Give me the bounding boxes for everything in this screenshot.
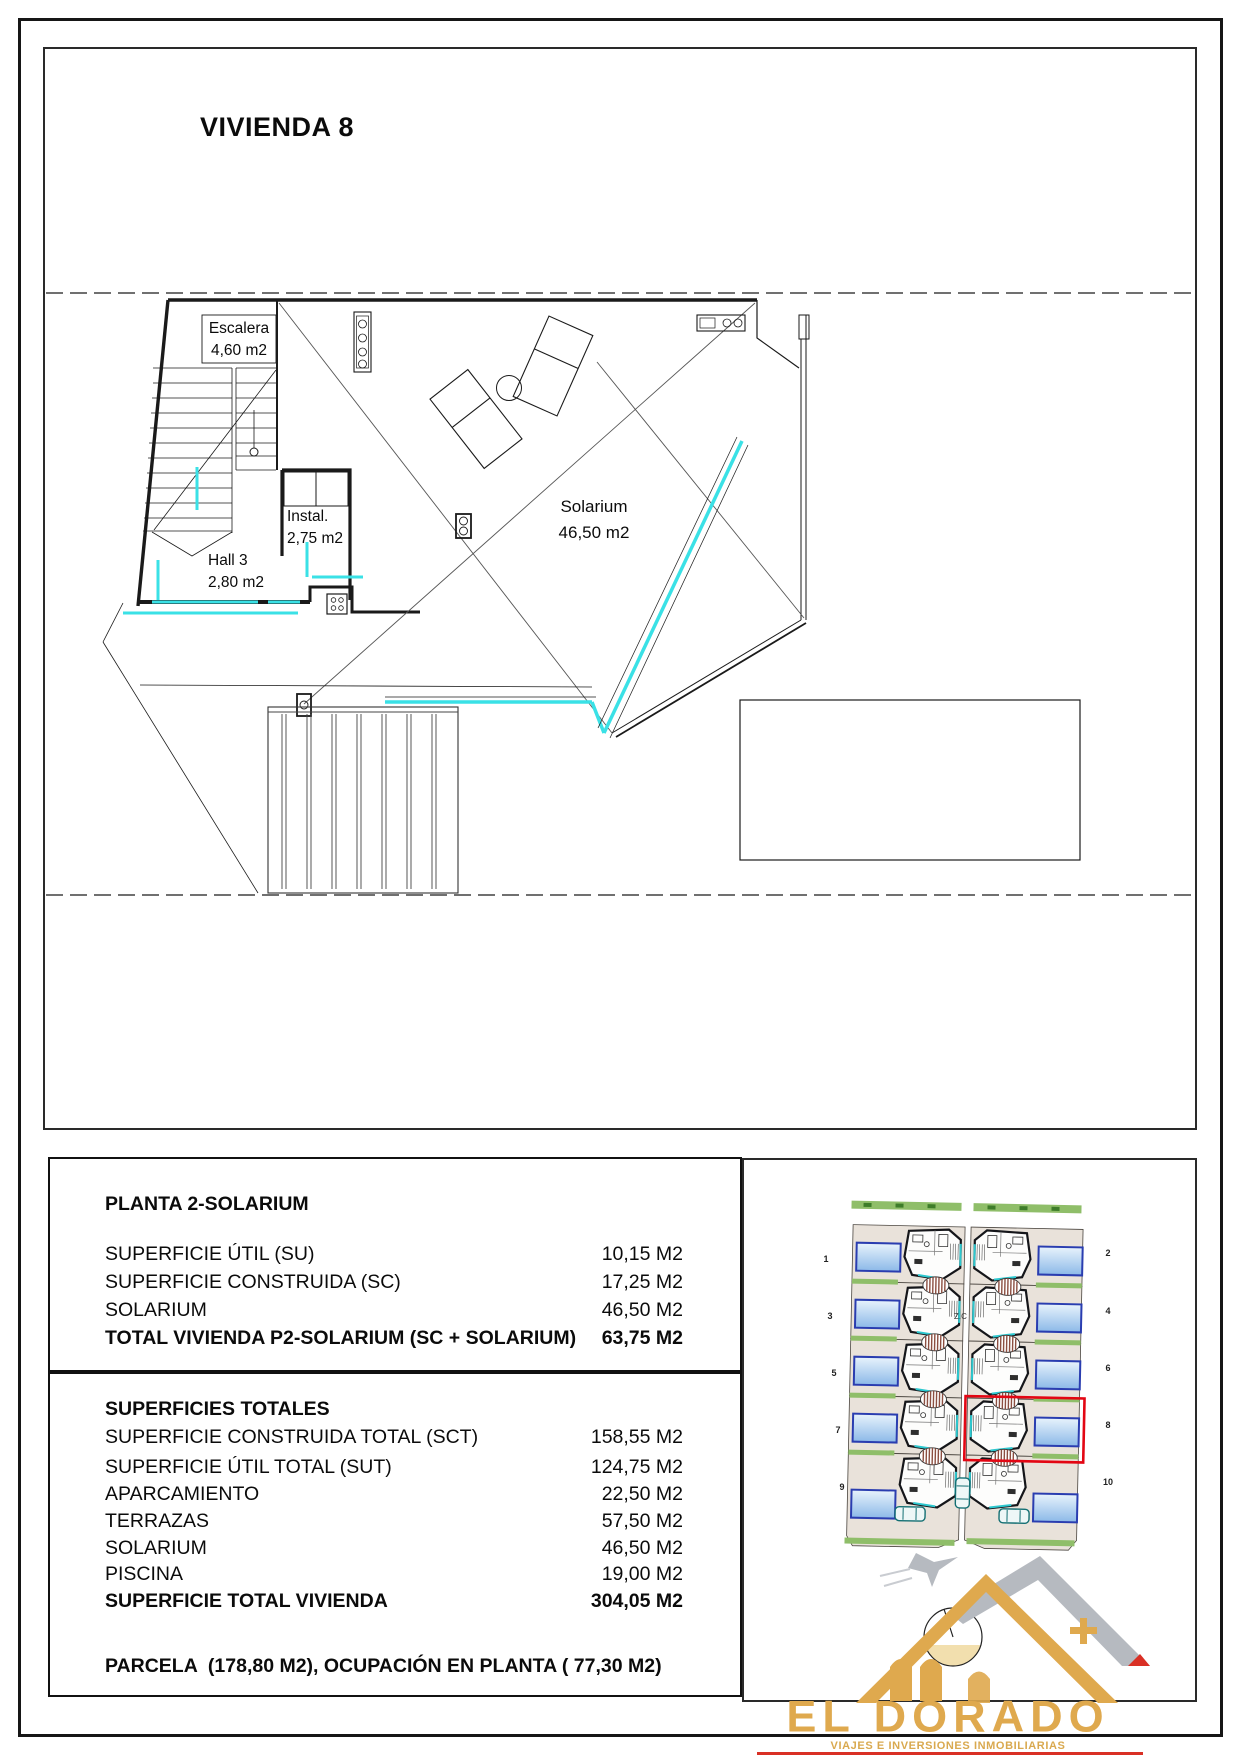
unit-number-2: 2 — [1100, 1248, 1116, 1258]
table-row: SOLARIUM 46,50 M2 — [50, 1299, 740, 1323]
row-value: 63,75 M2 — [602, 1327, 683, 1350]
row-value: 10,15 M2 — [602, 1243, 683, 1266]
row-label: SOLARIUM — [105, 1537, 207, 1560]
sun-lounger — [513, 316, 593, 416]
row-label: SOLARIUM — [105, 1299, 207, 1322]
table-title: PLANTA 2-SOLARIUM — [105, 1193, 309, 1216]
airplane-icon — [880, 1553, 958, 1587]
neighbour-pool — [740, 700, 1080, 860]
unit-number-4: 4 — [1100, 1306, 1116, 1316]
unit-number-8: 8 — [1100, 1420, 1116, 1430]
table-planta-solarium: PLANTA 2-SOLARIUM SUPERFICIE ÚTIL (SU) 1… — [48, 1157, 742, 1372]
table-row: SUPERFICIE ÚTIL (SU) 10,15 M2 — [50, 1243, 740, 1267]
table-total-row: TOTAL VIVIENDA P2-SOLARIUM (SC + SOLARIU… — [50, 1327, 740, 1351]
logo-tagline: VIAJES E INVERSIONES INMOBILIARIAS — [750, 1740, 1146, 1752]
unit-number-7: 7 — [830, 1425, 846, 1435]
room-label-instal: Instal. 2,75 m2 — [287, 506, 343, 550]
unit-number-9: 9 — [834, 1482, 850, 1492]
logo-graphic — [840, 1540, 1220, 1715]
unit-number-1: 1 — [818, 1254, 834, 1264]
room-label-escalera: Escalera 4,60 m2 — [202, 318, 276, 362]
row-value: 22,50 M2 — [602, 1483, 683, 1506]
table-row: APARCAMIENTO 22,50 M2 — [50, 1483, 740, 1507]
row-label: TOTAL VIVIENDA P2-SOLARIUM (SC + SOLARIU… — [105, 1327, 576, 1350]
counter-icon — [697, 315, 745, 331]
unit-number-3: 3 — [822, 1311, 838, 1321]
site-parcel — [844, 1201, 1088, 1551]
table-row: TERRAZAS 57,50 M2 — [50, 1510, 740, 1534]
hob-icon — [327, 594, 347, 614]
bbq-icon — [354, 312, 371, 372]
table-footer-row: PARCELA (178,80 M2), OCUPACIÓN EN PLANTA… — [50, 1655, 740, 1679]
row-label: SUPERFICIE CONSTRUIDA TOTAL (SCT) — [105, 1426, 478, 1449]
unit-number-6: 6 — [1100, 1363, 1116, 1373]
table-superficies-totales: SUPERFICIES TOTALES SUPERFICIE CONSTRUID… — [48, 1372, 742, 1697]
parcela-note: PARCELA (178,80 M2), OCUPACIÓN EN PLANTA… — [105, 1655, 662, 1678]
row-label: SUPERFICIE ÚTIL (SU) — [105, 1243, 314, 1266]
pergola — [268, 707, 458, 893]
row-label: APARCAMIENTO — [105, 1483, 259, 1506]
sun-lounger — [430, 370, 522, 469]
row-value: 124,75 M2 — [591, 1456, 683, 1479]
table-row: SUPERFICIE CONSTRUIDA (SC) 17,25 M2 — [50, 1271, 740, 1295]
row-label: TERRAZAS — [105, 1510, 209, 1533]
unit-number-10: 10 — [1100, 1477, 1116, 1487]
table-total-row: SUPERFICIE TOTAL VIVIENDA 304,05 M2 — [50, 1590, 740, 1614]
row-label: SUPERFICIE ÚTIL TOTAL (SUT) — [105, 1456, 392, 1479]
logo-name: EL DORADO — [750, 1692, 1146, 1743]
unit-number-5: 5 — [826, 1368, 842, 1378]
row-label: SUPERFICIE TOTAL VIVIENDA — [105, 1590, 388, 1613]
logo-house-icon — [856, 1556, 1150, 1703]
table-row: PISCINA 19,00 M2 — [50, 1563, 740, 1587]
row-value: 17,25 M2 — [602, 1271, 683, 1294]
row-value: 158,55 M2 — [591, 1426, 683, 1449]
zone-label: Z.C — [954, 1312, 967, 1321]
row-value: 46,50 M2 — [602, 1299, 683, 1322]
table-title: SUPERFICIES TOTALES — [105, 1398, 330, 1421]
table-row: SUPERFICIE ÚTIL TOTAL (SUT) 124,75 M2 — [50, 1456, 740, 1480]
row-value: 57,50 M2 — [602, 1510, 683, 1533]
row-label: SUPERFICIE CONSTRUIDA (SC) — [105, 1271, 401, 1294]
table-row: SOLARIUM 46,50 M2 — [50, 1537, 740, 1561]
row-value: 304,05 M2 — [591, 1590, 683, 1613]
row-value: 46,50 M2 — [602, 1537, 683, 1560]
stair-treads — [143, 368, 276, 556]
plan-sheet: VIVIENDA 8 — [0, 0, 1241, 1755]
wall-left — [138, 300, 168, 606]
table-row: SUPERFICIE CONSTRUIDA TOTAL (SCT) 158,55… — [50, 1426, 740, 1450]
row-value: 19,00 M2 — [602, 1563, 683, 1586]
room-label-hall: Hall 3 2,80 m2 — [208, 550, 264, 594]
room-label-solarium: Solarium 46,50 m2 — [509, 494, 679, 546]
logo-underline — [757, 1752, 1143, 1755]
row-label: PISCINA — [105, 1563, 183, 1586]
